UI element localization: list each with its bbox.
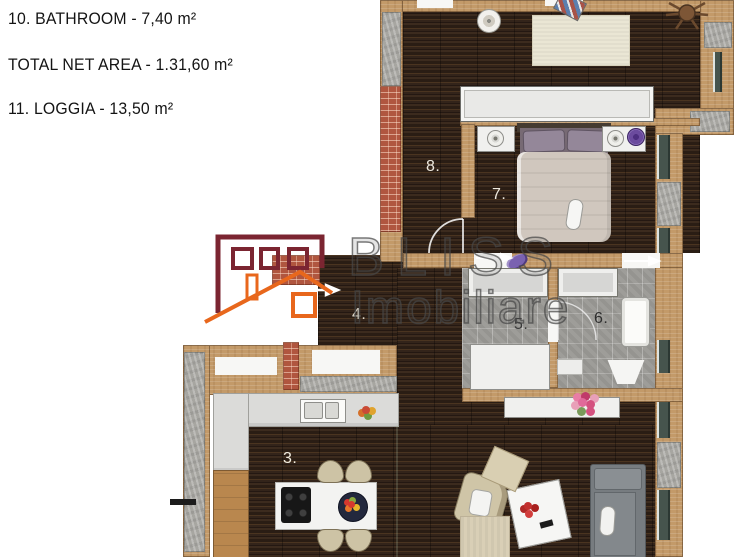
area-label-loggia: 11. LOGGIA - 13,50 m² (8, 99, 173, 119)
brand-subtitle: Imobiliare (351, 284, 570, 330)
floor-plan-page: 3. 4. 5. 6. 7. 8. BLISS Imobiliare 10. B… (0, 0, 742, 557)
room-label-3: 3. (283, 450, 297, 468)
bathroom-door-arrow (624, 257, 659, 265)
area-label-total-net-area: TOTAL NET AREA - 1.31,60 m² (8, 55, 233, 75)
room-label-7: 7. (492, 186, 506, 204)
ceiling-fan-icon (666, 3, 708, 29)
room-label-8: 8. (426, 158, 440, 176)
area-label-bathroom: 10. BATHROOM - 7,40 m² (8, 9, 196, 29)
brand-name: BLISS (348, 230, 566, 284)
room-label-6: 6. (594, 310, 608, 328)
